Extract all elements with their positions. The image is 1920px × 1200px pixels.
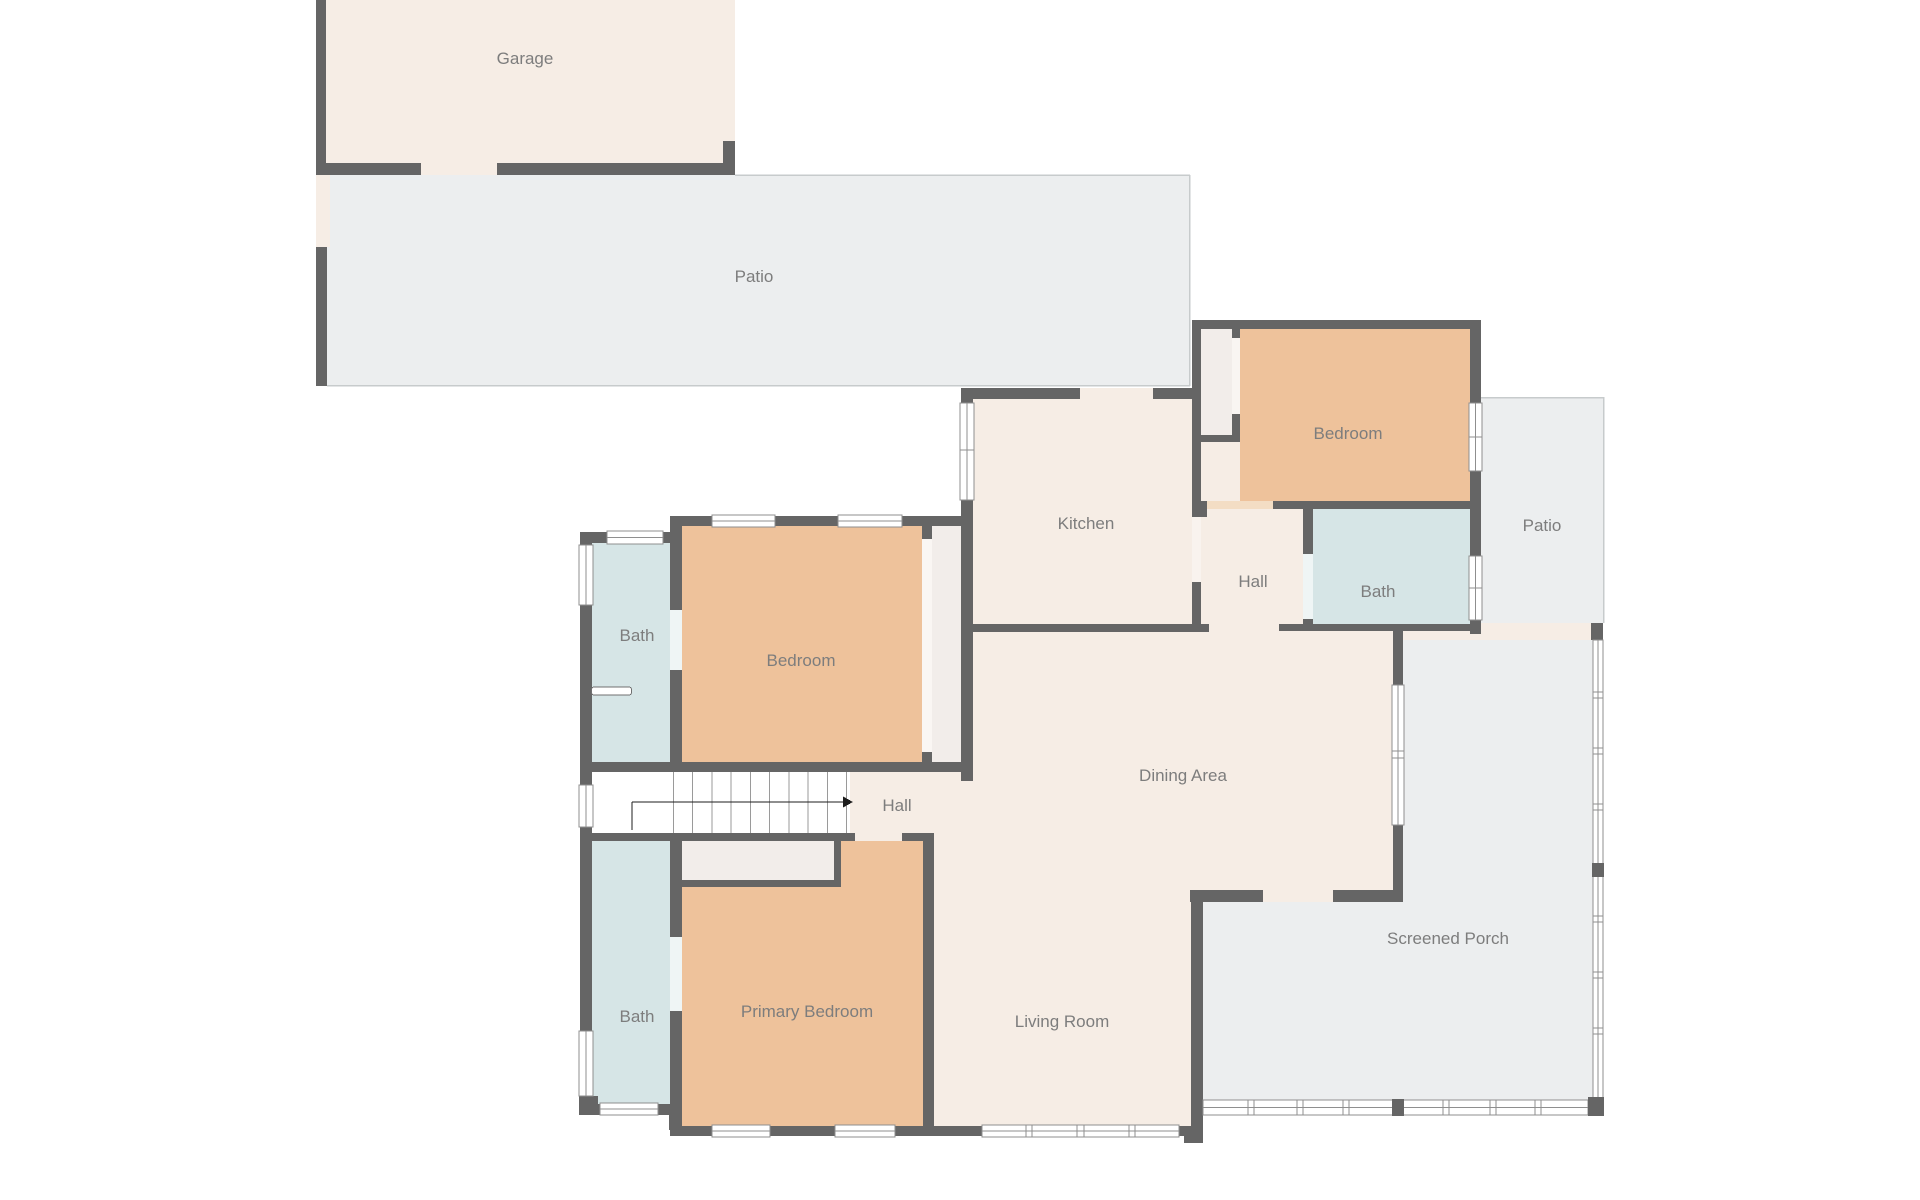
svg-text:Garage: Garage (497, 49, 554, 68)
svg-text:Dining Area: Dining Area (1139, 766, 1227, 785)
svg-text:Bath: Bath (620, 1007, 655, 1026)
svg-text:Screened Porch: Screened Porch (1387, 929, 1509, 948)
svg-text:Bath: Bath (1361, 582, 1396, 601)
svg-text:Hall: Hall (1238, 572, 1267, 591)
svg-text:Living Room: Living Room (1015, 1012, 1110, 1031)
svg-text:Primary Bedroom: Primary Bedroom (741, 1002, 873, 1021)
svg-text:Hall: Hall (882, 796, 911, 815)
svg-text:Bath: Bath (620, 626, 655, 645)
svg-text:Patio: Patio (735, 267, 774, 286)
svg-text:Bedroom: Bedroom (1314, 424, 1383, 443)
svg-text:Kitchen: Kitchen (1058, 514, 1115, 533)
svg-text:Bedroom: Bedroom (767, 651, 836, 670)
svg-text:Patio: Patio (1523, 516, 1562, 535)
